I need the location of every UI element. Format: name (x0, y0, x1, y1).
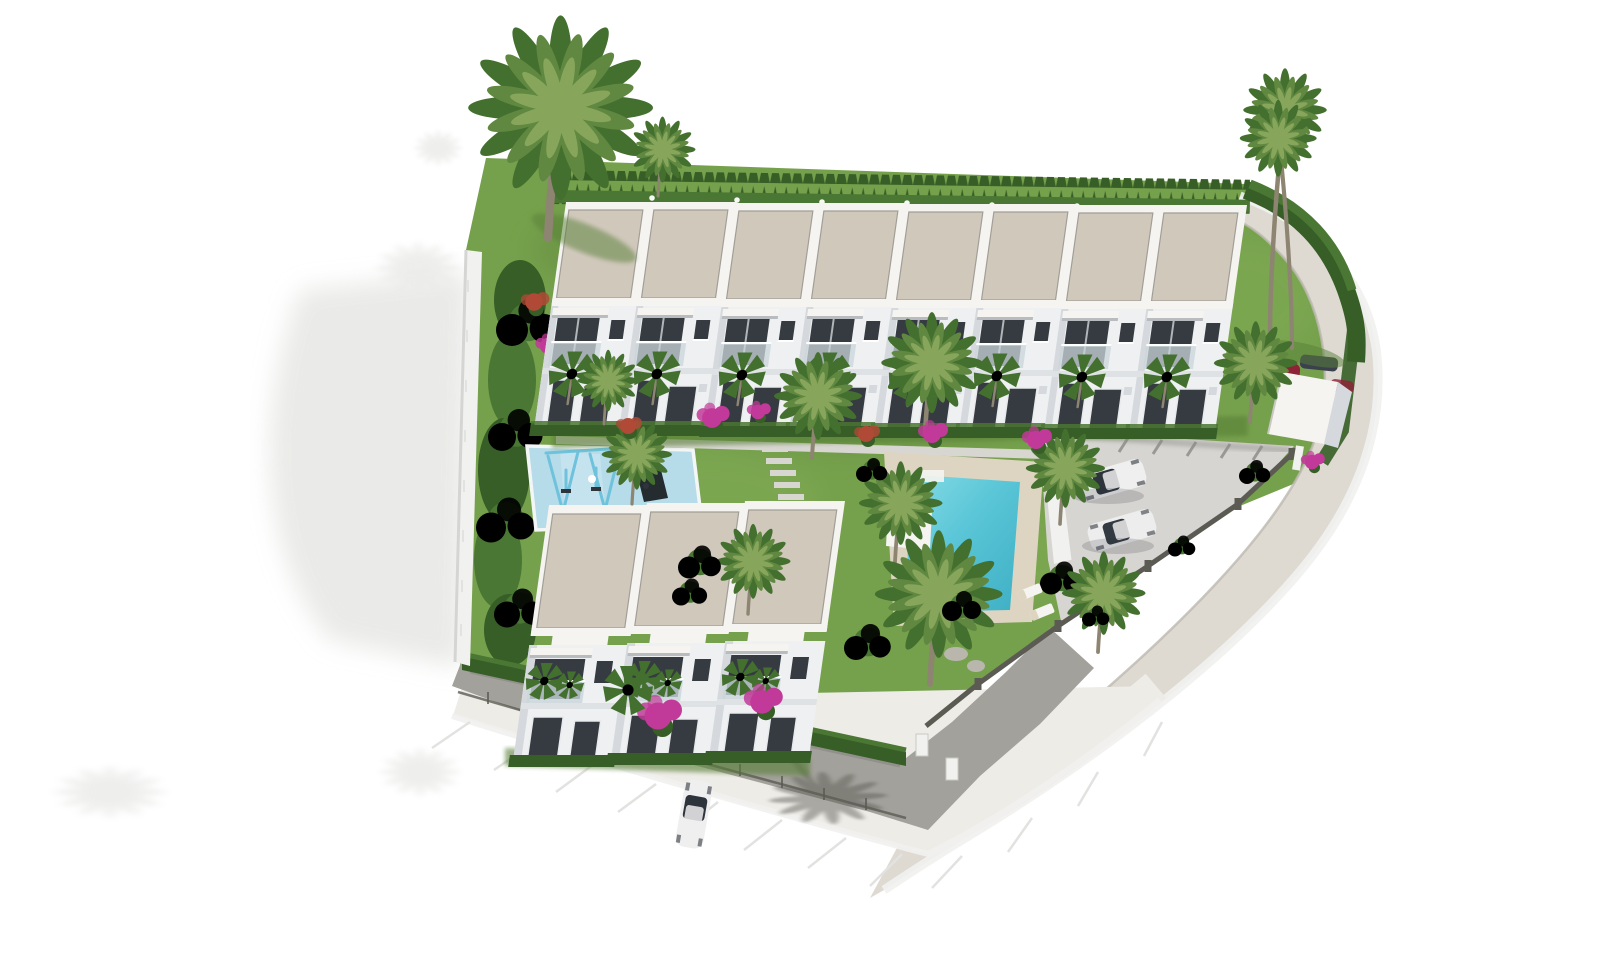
top-row (529, 202, 1249, 448)
site-plan-render (0, 0, 1600, 960)
gate-pillar-1 (916, 734, 928, 756)
lower-block (505, 501, 847, 776)
render-canvas (0, 0, 1600, 960)
gate-pillar-2 (946, 758, 958, 780)
